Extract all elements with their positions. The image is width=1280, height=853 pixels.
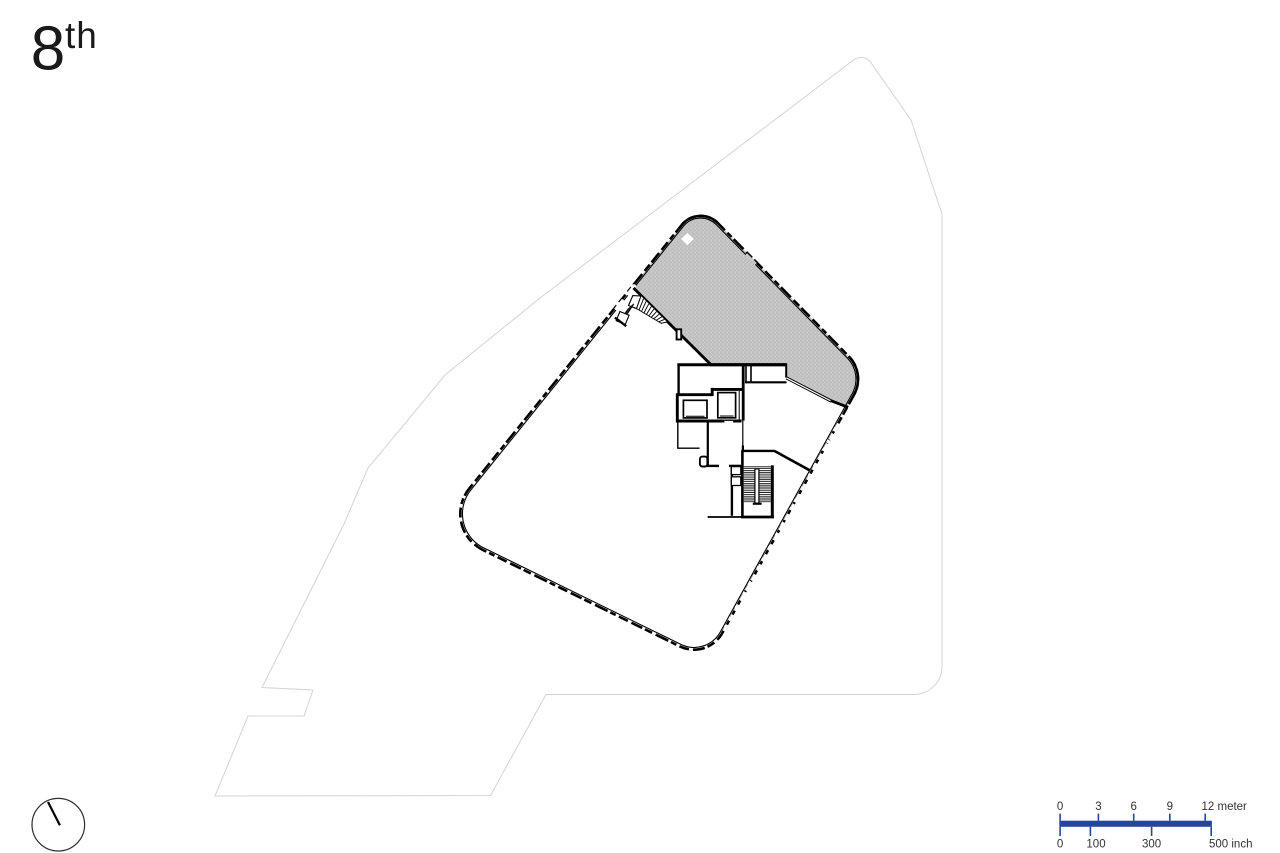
svg-text:8: 8 (31, 15, 64, 84)
svg-text:th: th (65, 15, 98, 56)
svg-text:0: 0 (1057, 801, 1063, 813)
svg-text:500 inch: 500 inch (1209, 839, 1252, 851)
svg-text:6: 6 (1130, 801, 1136, 813)
svg-text:3: 3 (1095, 801, 1101, 813)
svg-text:0: 0 (1057, 839, 1063, 851)
svg-text:300: 300 (1142, 839, 1161, 851)
svg-text:9: 9 (1167, 801, 1173, 813)
svg-text:100: 100 (1086, 839, 1105, 851)
svg-text:12 meter: 12 meter (1202, 801, 1248, 813)
